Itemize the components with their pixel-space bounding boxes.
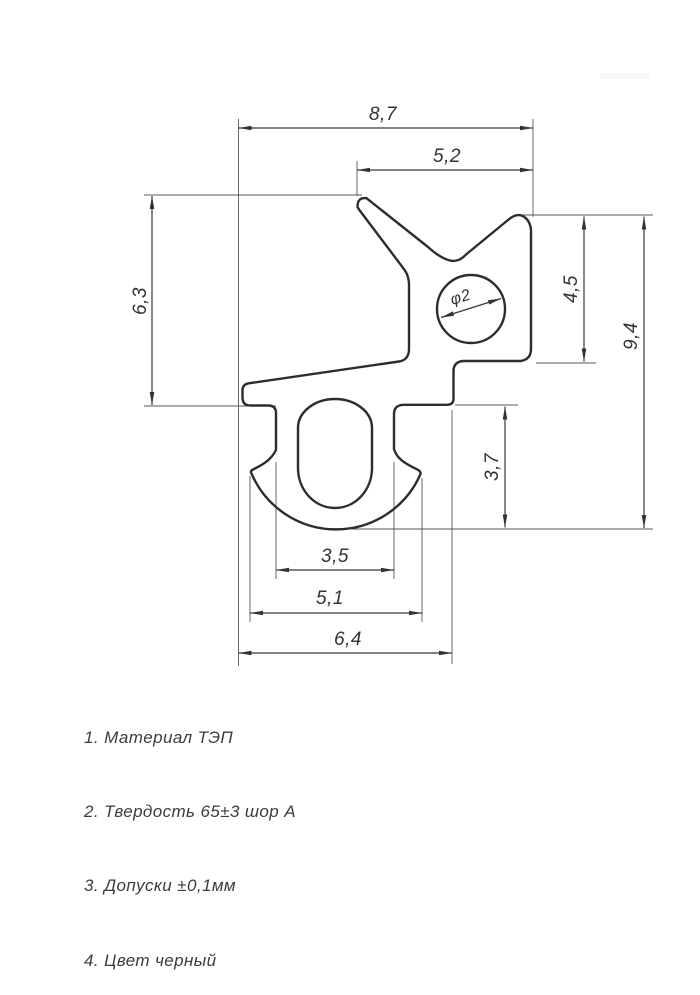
dim-upper-right-height: 4,5: [561, 217, 584, 362]
note-item: 2. Твердость 65±3 шор А: [84, 800, 296, 825]
dim-label-upper-right-height: 4,5: [561, 275, 582, 303]
notes-list: 1. Материал ТЭП 2. Твердость 65±3 шор А …: [84, 676, 296, 995]
dim-hole-diameter: φ2: [441, 287, 501, 318]
dim-label-overall-height: 9,4: [621, 322, 642, 350]
dim-left-height: 6,3: [130, 196, 152, 405]
dim-label-base-width: 6,4: [334, 629, 362, 650]
dim-label-barb-width: 5,1: [316, 588, 344, 609]
dim-barb-width: 5,1: [250, 588, 422, 613]
round-hole: [437, 275, 505, 343]
dim-foot-width: 3,5: [276, 546, 394, 570]
dim-base-width: 6,4: [239, 629, 453, 653]
dim-fork-width: 5,2: [357, 146, 533, 170]
scan-smudge: [600, 73, 650, 79]
dim-label-lower-right-height: 3,7: [482, 452, 503, 481]
oval-hole: [298, 399, 372, 508]
dim-label-top-width: 8,7: [369, 104, 398, 125]
dim-top-width: 8,7: [239, 104, 534, 128]
note-item: 1. Материал ТЭП: [84, 726, 296, 751]
note-item: 3. Допуски ±0,1мм: [84, 874, 296, 899]
extension-lines: [144, 119, 653, 666]
dim-label-hole-diameter: φ2: [448, 287, 472, 309]
dim-label-fork-width: 5,2: [433, 146, 461, 167]
dim-overall-height: 9,4: [621, 217, 644, 529]
note-item: 4. Цвет черный: [84, 949, 296, 974]
dim-lower-right-height: 3,7: [482, 407, 505, 528]
dim-label-foot-width: 3,5: [321, 546, 349, 567]
drawing-sheet: 8,7 5,2 6,3 φ2 4,5 9,4 3,7 3,5: [0, 0, 700, 995]
dim-label-left-height: 6,3: [130, 287, 151, 315]
